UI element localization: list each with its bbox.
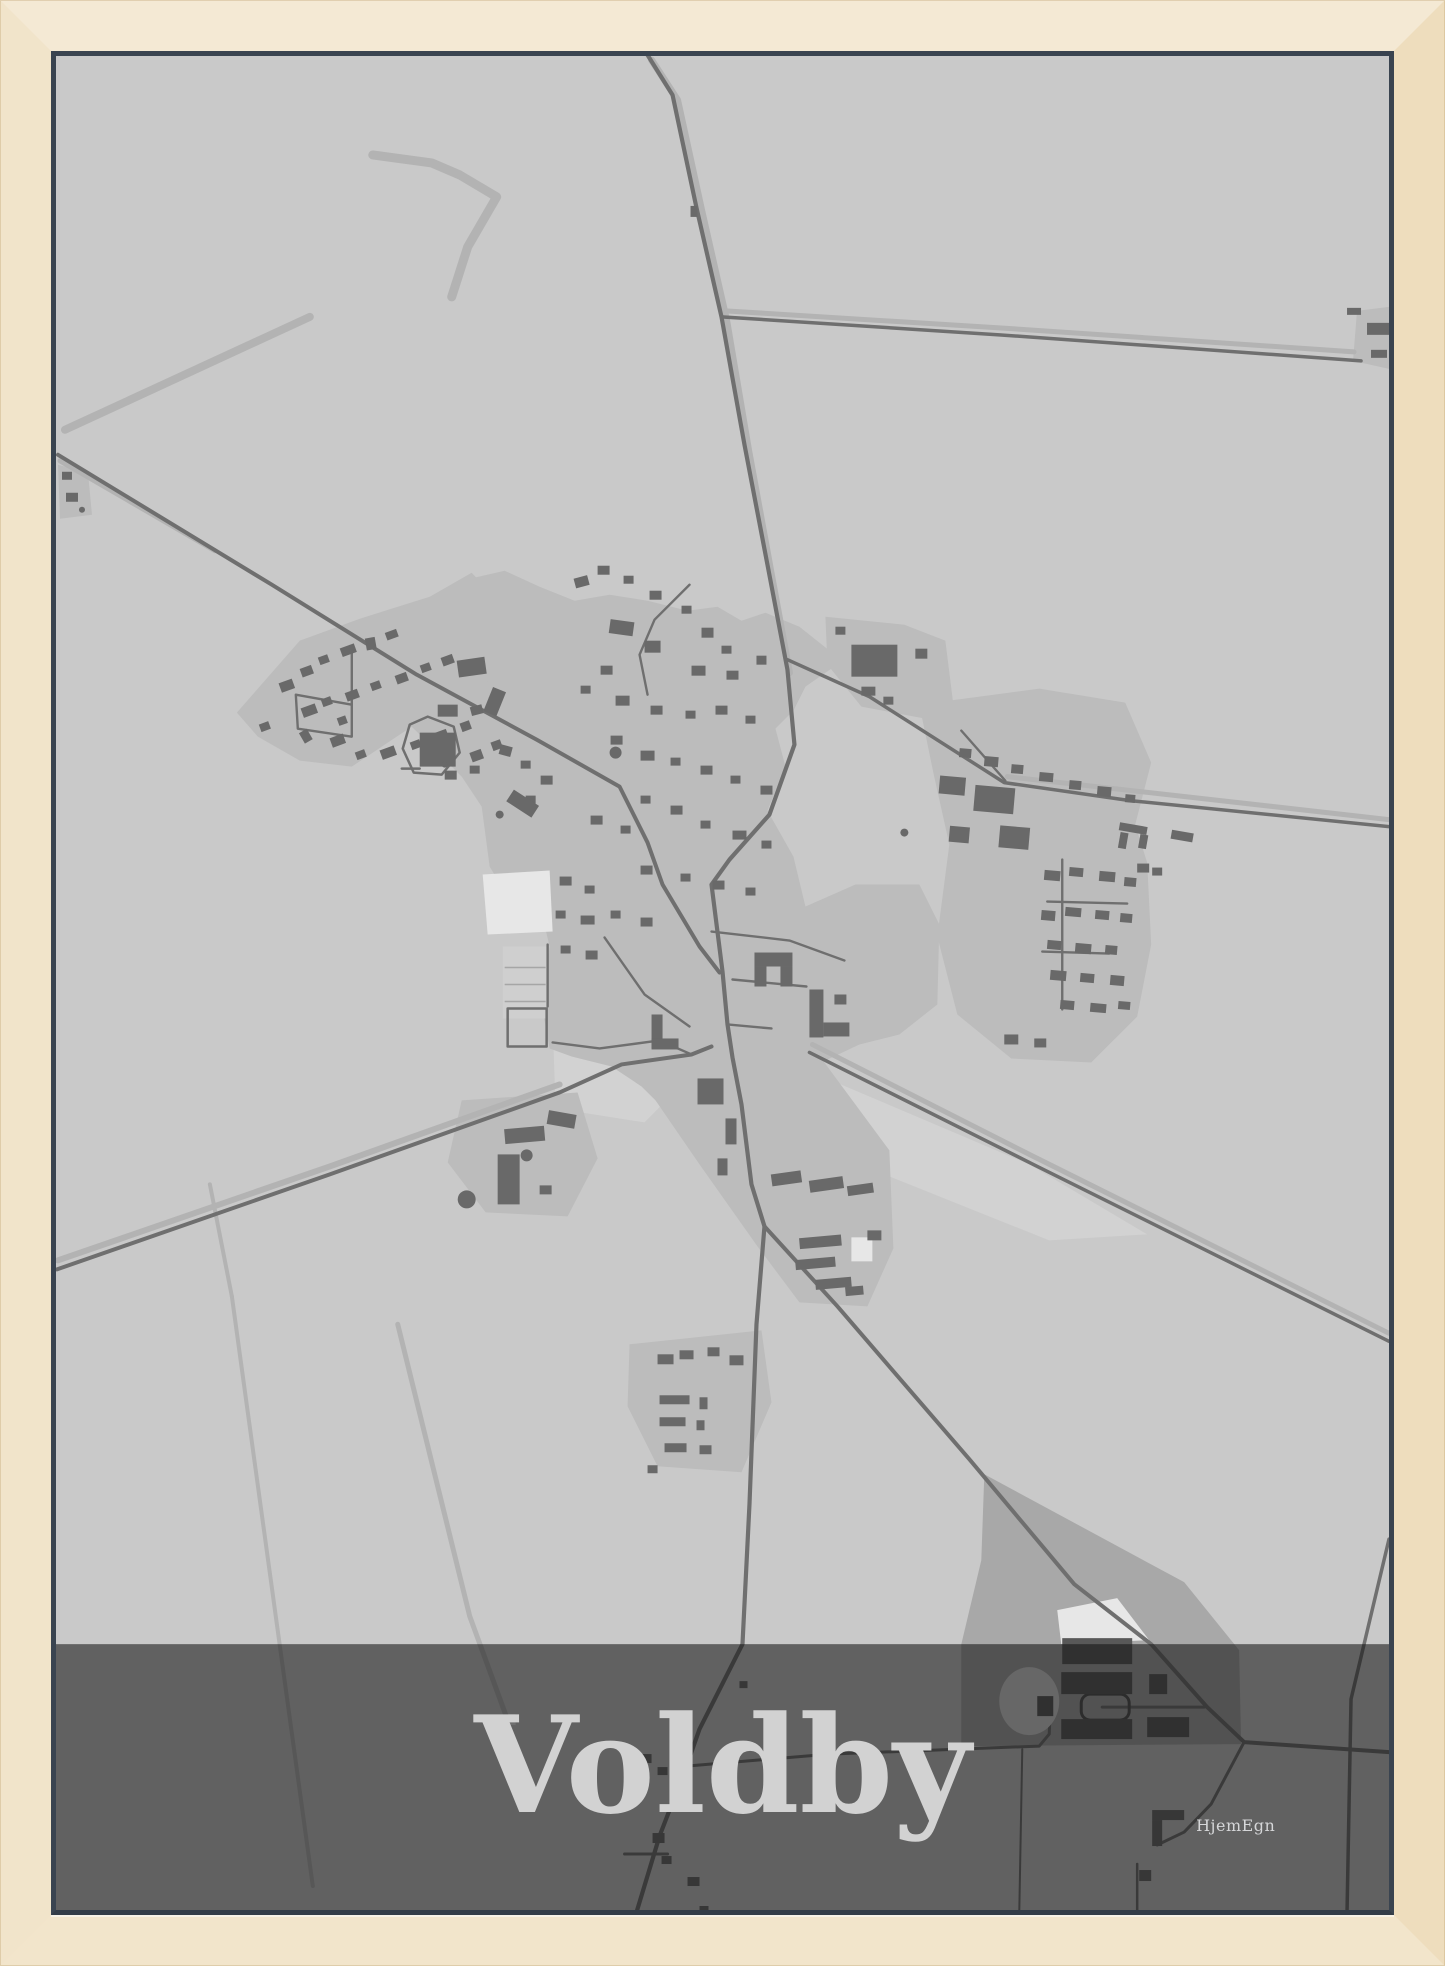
building-shape — [658, 1354, 674, 1364]
building-shape — [498, 1154, 520, 1204]
building-shape — [1367, 323, 1389, 335]
building-shape — [1044, 870, 1061, 881]
building-shape — [1095, 910, 1110, 920]
building-shape — [1080, 973, 1095, 983]
building-shape — [1050, 970, 1067, 981]
building-shape — [540, 1185, 552, 1194]
building-shape — [671, 806, 683, 815]
building-shape — [959, 748, 972, 758]
building-shape — [716, 706, 728, 715]
building-shape — [365, 637, 377, 651]
building-shape — [616, 696, 630, 706]
building-shape — [438, 705, 458, 717]
building-shape — [1110, 975, 1125, 986]
building-shape — [761, 841, 771, 849]
building-shape — [611, 911, 621, 919]
round-structure — [521, 1149, 533, 1161]
building-shape — [561, 946, 571, 954]
building-shape — [700, 1445, 712, 1454]
light-patch — [851, 1237, 872, 1261]
poster: Voldby HjemEgn — [51, 51, 1394, 1915]
building-shape — [851, 645, 897, 677]
building-shape — [62, 472, 72, 480]
building-shape — [701, 766, 713, 775]
building-shape — [652, 1038, 679, 1049]
building-shape — [780, 967, 792, 987]
building-shape — [541, 776, 553, 785]
building-shape — [521, 761, 531, 769]
building-shape — [586, 951, 598, 960]
round-structure — [610, 747, 622, 759]
building-shape — [680, 1350, 694, 1359]
building-shape — [725, 1118, 736, 1144]
brand-logo: HjemEgn — [1196, 1816, 1275, 1835]
round-structure — [458, 1190, 476, 1208]
building-shape — [691, 206, 698, 217]
building-shape — [1120, 913, 1133, 923]
building-shape — [861, 687, 875, 696]
building-shape — [726, 671, 738, 680]
building-shape — [867, 1230, 881, 1240]
building-shape — [718, 1158, 728, 1175]
building-shape — [973, 785, 1015, 814]
building-shape — [611, 736, 623, 745]
building-shape — [660, 1417, 686, 1426]
building-shape — [1047, 940, 1062, 950]
building-shape — [1105, 945, 1118, 955]
building-shape — [1118, 1001, 1131, 1010]
building-shape — [641, 918, 653, 927]
building-shape — [998, 825, 1030, 850]
building-shape — [732, 831, 746, 840]
building-shape — [883, 697, 893, 705]
building-shape — [581, 916, 595, 925]
building-shape — [420, 733, 456, 767]
building-shape — [1004, 1034, 1018, 1044]
building-shape — [730, 776, 740, 784]
building-shape — [1090, 1003, 1107, 1013]
building-shape — [1152, 868, 1162, 876]
building-shape — [754, 967, 766, 987]
building-shape — [713, 881, 725, 890]
building-shape — [641, 751, 655, 761]
building-shape — [809, 989, 823, 1037]
building-shape — [692, 666, 706, 676]
building-shape — [701, 821, 711, 829]
building-shape — [686, 711, 696, 719]
building-shape — [1060, 1000, 1075, 1010]
building-shape — [702, 628, 714, 638]
building-shape — [949, 826, 970, 844]
village-map: Voldby HjemEgn — [56, 56, 1389, 1910]
building-shape — [1347, 308, 1361, 315]
building-shape — [1065, 907, 1082, 917]
building-shape — [729, 1355, 743, 1365]
light-patch — [483, 871, 553, 935]
building-shape — [698, 1078, 724, 1104]
building-shape — [1011, 764, 1024, 774]
building-shape — [598, 566, 610, 575]
building-shape — [1097, 786, 1112, 797]
building-shape — [591, 816, 603, 825]
building-shape — [760, 786, 772, 795]
poster-title: Voldby — [473, 1686, 975, 1844]
framed-map-poster: Voldby HjemEgn — [0, 0, 1445, 1966]
building-shape — [845, 1286, 864, 1297]
building-shape — [1371, 350, 1387, 358]
building-shape — [834, 994, 846, 1004]
building-shape — [835, 627, 845, 635]
building-shape — [1137, 864, 1149, 873]
building-shape — [621, 826, 631, 834]
building-shape — [745, 716, 755, 724]
building-shape — [470, 766, 480, 774]
building-shape — [1069, 780, 1082, 790]
building-shape — [641, 866, 653, 875]
building-shape — [641, 796, 651, 804]
building-shape — [660, 1395, 690, 1404]
building-shape — [585, 886, 595, 894]
building-shape — [1075, 943, 1092, 954]
building-shape — [1099, 871, 1116, 882]
building-shape — [700, 1397, 708, 1409]
building-shape — [581, 686, 591, 694]
building-shape — [560, 877, 572, 886]
round-structure — [79, 507, 85, 513]
building-shape — [823, 1022, 849, 1036]
building-shape — [756, 656, 766, 665]
building-shape — [681, 874, 691, 882]
round-structure — [496, 811, 504, 819]
building-shape — [1039, 772, 1054, 782]
building-shape — [1124, 877, 1137, 887]
building-shape — [939, 776, 966, 796]
building-shape — [682, 606, 692, 614]
building-shape — [671, 758, 681, 766]
building-shape — [708, 1347, 720, 1356]
building-shape — [984, 756, 999, 767]
building-shape — [1034, 1038, 1046, 1047]
building-shape — [66, 493, 78, 502]
building-shape — [556, 911, 566, 919]
building-shape — [697, 1420, 705, 1430]
building-shape — [915, 649, 927, 659]
building-shape — [651, 706, 663, 715]
map-graphics — [56, 56, 1389, 1910]
building-shape — [722, 646, 732, 654]
building-shape — [601, 666, 613, 675]
building-shape — [624, 576, 634, 584]
building-shape — [745, 888, 755, 896]
building-shape — [650, 591, 662, 600]
building-shape — [1041, 910, 1056, 921]
building-shape — [645, 641, 661, 653]
building-shape — [1125, 794, 1136, 803]
building-shape — [665, 1443, 687, 1452]
building-shape — [754, 953, 792, 967]
building-shape — [1069, 867, 1084, 877]
building-shape — [445, 771, 457, 780]
building-shape — [648, 1465, 658, 1473]
round-structure — [900, 829, 908, 837]
round-structure — [442, 762, 448, 768]
